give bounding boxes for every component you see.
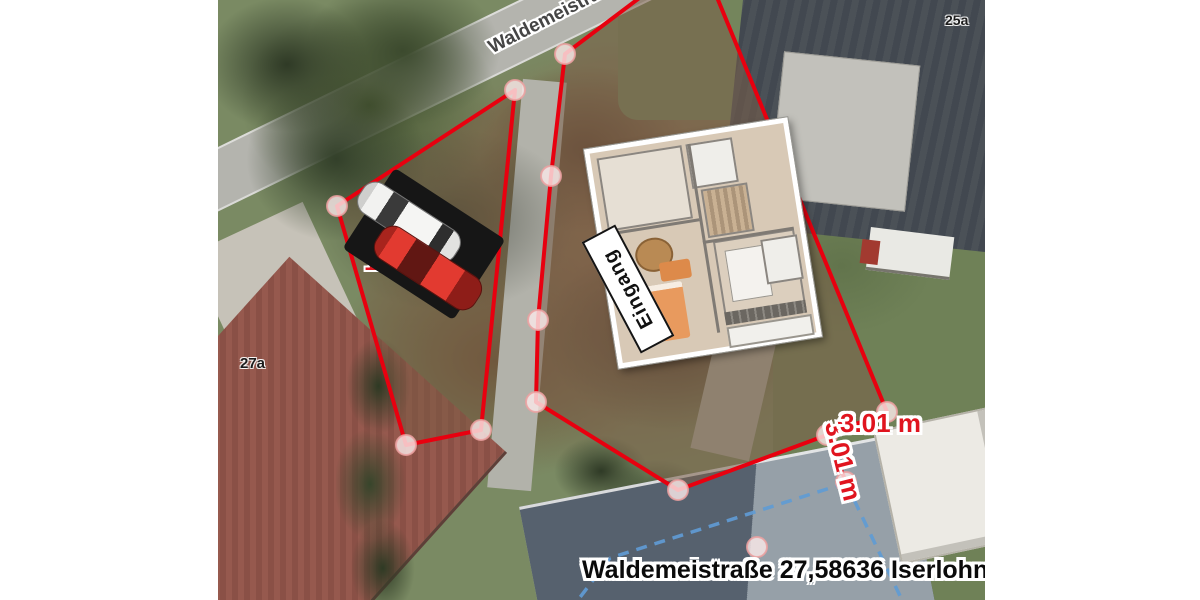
vertex-marker[interactable] bbox=[668, 480, 688, 500]
vertex-marker[interactable] bbox=[747, 537, 767, 557]
vertex-marker[interactable] bbox=[541, 166, 561, 186]
vertex-marker[interactable] bbox=[471, 420, 491, 440]
floorplan-stairs bbox=[701, 182, 755, 237]
vertex-marker[interactable] bbox=[396, 435, 416, 455]
floorplan-room bbox=[596, 145, 693, 232]
measurement-label: 3.01 m bbox=[840, 408, 921, 439]
roof-outline-left bbox=[610, 483, 846, 558]
floorplan-sofa bbox=[659, 258, 693, 282]
vertex-marker[interactable] bbox=[526, 392, 546, 412]
vertex-marker[interactable] bbox=[555, 44, 575, 64]
vertex-marker[interactable] bbox=[327, 196, 347, 216]
vertex-marker[interactable] bbox=[528, 310, 548, 330]
vertex-marker[interactable] bbox=[505, 80, 525, 100]
floorplan-bath bbox=[760, 235, 804, 285]
aerial-photo[interactable]: 1 m² Eingang 3.01 m 3.01 m bbox=[218, 0, 985, 600]
boundary-overlay bbox=[218, 0, 985, 600]
house-number-label-27a: 27a bbox=[240, 355, 265, 372]
map-canvas: 1 m² Eingang 3.01 m 3.01 m bbox=[0, 0, 1200, 600]
address-caption: Waldemeistraße 27,58636 Iserlohn bbox=[582, 556, 985, 585]
house-number-label-25a: 25a bbox=[945, 12, 968, 28]
